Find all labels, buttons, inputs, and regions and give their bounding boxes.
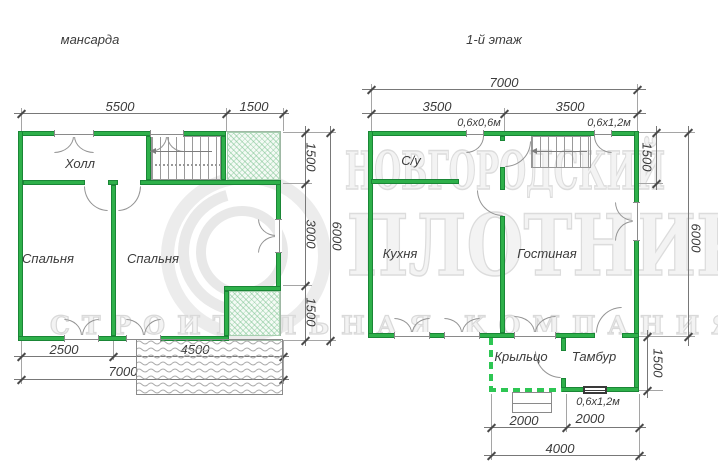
window-casement-arc — [54, 136, 74, 153]
window-size-label: 0,6х1,2м — [576, 396, 620, 408]
floor-plan-canvas: НОВГОРОДСКИЙ ПЛОТНИК СТРОИТЕЛЬНАЯ КОМПАН… — [0, 0, 718, 470]
dim-label: 6000 — [330, 222, 345, 251]
dim-label: 3500 — [556, 99, 585, 114]
porch-dashed-edge — [489, 338, 493, 392]
window — [633, 202, 640, 241]
room-label-bedroom-right: Спальня — [127, 251, 179, 266]
wall-segment — [500, 167, 505, 190]
staircase — [531, 136, 591, 168]
window-tambour — [583, 386, 607, 394]
window — [514, 332, 556, 339]
room-label-bathroom: С/у — [401, 153, 421, 168]
wall-segment — [221, 136, 226, 180]
door-swing-arc — [84, 186, 108, 211]
dim-label: 7000 — [490, 75, 519, 90]
wall-segment — [500, 216, 505, 333]
dim-label: 6000 — [689, 224, 704, 253]
window-size-label: 0,6х1,2м — [587, 117, 631, 129]
wall-segment — [23, 180, 85, 185]
dim-label: 1500 — [640, 143, 655, 172]
entrance-steps — [512, 392, 552, 413]
wall-segment — [111, 185, 116, 336]
terrace-edge-line — [226, 131, 281, 132]
room-label-hall: Холл — [65, 156, 95, 171]
dim-label: 1500 — [304, 143, 319, 172]
window — [466, 130, 484, 137]
staircase-arrow-icon — [531, 148, 537, 154]
dim-tick — [109, 352, 118, 361]
dim-label: 1500 — [651, 349, 666, 378]
staircase-direction-line — [156, 151, 212, 152]
dim-label: 3000 — [304, 220, 319, 249]
staircase-balusters — [151, 161, 221, 166]
dim-label: 3500 — [423, 99, 452, 114]
wall-segment — [368, 131, 373, 338]
wall-segment — [224, 286, 281, 291]
window — [275, 219, 282, 253]
extension-line — [639, 183, 663, 184]
window — [444, 332, 480, 339]
window-casement-arc — [74, 136, 94, 153]
wall-segment — [371, 179, 459, 184]
window — [64, 335, 99, 342]
wall-segment — [634, 131, 639, 392]
door-swing-arc — [118, 186, 141, 211]
staircase-direction-line — [537, 151, 587, 152]
room-label-living: Гостиная — [517, 246, 576, 261]
room-label-tambour: Тамбур — [572, 349, 617, 364]
open-terrace-hatch-bottom-right — [229, 291, 280, 336]
wall-segment — [622, 333, 639, 338]
plan-first-floor-title: 1-й этаж — [466, 32, 522, 47]
wall-segment — [561, 387, 584, 392]
dim-label: 7000 — [109, 364, 138, 379]
window-size-label: 0,6х0,6м — [457, 117, 501, 129]
wall-segment — [606, 387, 639, 392]
dim-label: 2500 — [50, 342, 79, 357]
dim-label: 1500 — [304, 298, 319, 327]
room-label-kitchen: Кухня — [383, 246, 418, 261]
dim-label: 1500 — [240, 99, 269, 114]
veranda-hatch — [136, 339, 283, 395]
staircase-arrow-icon — [150, 148, 156, 154]
window — [594, 130, 612, 137]
open-terrace-hatch-top-right — [227, 132, 280, 180]
window — [150, 130, 184, 137]
dim-label: 4000 — [546, 441, 575, 456]
room-label-bedroom-left: Спальня — [22, 251, 74, 266]
dim-label: 5500 — [106, 99, 135, 114]
terrace-edge-line — [280, 291, 281, 336]
wall-segment — [224, 291, 229, 336]
wall-segment — [561, 338, 566, 351]
terrace-edge-line — [280, 131, 281, 180]
window — [54, 130, 94, 137]
wall-segment — [18, 131, 23, 341]
wall-segment — [140, 180, 281, 185]
room-label-porch: Крыльцо — [494, 349, 547, 364]
dim-label: 2000 — [576, 411, 605, 426]
extension-line — [639, 390, 663, 391]
plan-mansarda-title: мансарда — [61, 32, 120, 47]
window — [394, 332, 430, 339]
dim-label: 2000 — [510, 413, 539, 428]
